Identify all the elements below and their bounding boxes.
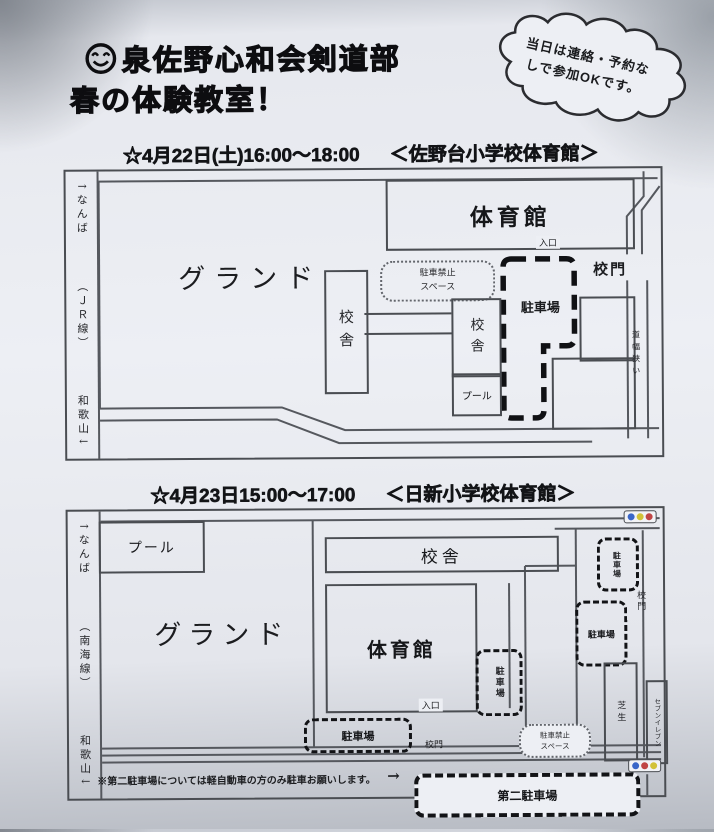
map1-rail-line: （ＪＲ線） [74,280,90,350]
map2-parking-top: 駐車場 [597,537,639,591]
map1-rail-strip: ↑なんば （ＪＲ線） 和歌山↓ [66,172,101,459]
map2-lawn-area: 芝生 [604,662,639,761]
map2-no-parking-line2: スペース [540,741,569,752]
map2-seven-eleven: セブンイレブン [646,680,669,764]
speech-cloud: 当日は連絡・予約な しで参加OKです。 [470,0,701,142]
map1-pool-building: プール [452,373,502,416]
smiley-icon [84,41,118,75]
map1-no-parking-line2: スペース [420,281,455,295]
map1-building-se [552,357,636,430]
traffic-light-icon [628,759,661,772]
map1-sanodai: ↑なんば （ＪＲ線） 和歌山↓ グランド 体育館 入口 駐車禁止 スペース 校舎… [63,166,664,461]
map2-ground-label: グランド [154,612,290,652]
flyer: 泉佐野心和会剣道部 春の体験教室！ 当日は連絡・予約な しで参加OKです。 ☆4… [0,0,714,831]
map2-parking-top-label: 駐車場 [612,551,623,578]
map1-school-building-left: 校舎 [324,270,369,394]
map2-pool-label: プール [128,537,176,557]
map2-parking-side-label: 駐車場 [493,666,506,699]
map1-heading: ☆4月22日(土)16:00～18:00 ＜佐野台小学校体育館＞ [63,138,658,169]
map2-note-text: ※第二駐車場については軽自動車の方のみ駐車お願いします。 [97,771,376,788]
map1-parking-label: 駐車場 [509,297,571,316]
traffic-red-dot [646,513,653,520]
traffic-light-icon [624,510,657,523]
map1-venue: ＜佐野台小学校体育館＞ [390,139,599,167]
map1-gym-label: 体育館 [470,197,551,231]
map2-parking-side: 駐車場 [475,649,522,716]
map1-school-building-right: 校舎 [451,298,501,377]
map2-gym-label: 体育館 [367,634,436,663]
map2-rail-strip: ↑なんば （南海線） 和歌山↓ [68,512,103,799]
cloud-text: 当日は連絡・予約な しで参加OKです。 [470,0,701,142]
traffic-red-dot [641,762,648,769]
map1-school-left-label: 校舎 [336,309,357,355]
map1-rail-wakayama: 和歌山↓ [74,394,90,448]
map1-corridor [364,312,451,335]
map2-venue: ＜日新小学校体育館＞ [385,479,575,507]
traffic-blue-dot [632,762,639,769]
map2-parking-mid-label: 駐車場 [588,627,615,640]
title-line1: 泉佐野心和会剣道部 [122,36,401,80]
map1-building-ne [579,296,635,361]
map1-no-parking-space: 駐車禁止 スペース [380,260,495,302]
map2-rail-wakayama: 和歌山↓ [76,734,92,788]
traffic-blue-dot [628,513,635,520]
flyer-title-row: 泉佐野心和会剣道部 [84,36,401,80]
map1-gate-label: 校門 [593,258,627,279]
map2-rail-namba: ↑なんば [75,522,91,576]
map1-school-right-label: 校舎 [466,317,486,359]
traffic-yellow-dot [637,513,644,520]
map1-rail-namba: ↑なんば [73,182,89,236]
traffic-yellow-dot [650,762,657,769]
map1-ground-label: グランド [178,256,322,296]
map2-rail-line: （南海線） [76,620,92,690]
map2-note-arrow-icon: → [387,767,400,785]
map2-gate-bottom-label: 校門 [425,737,443,750]
map2-gym-building: 体育館 [325,583,478,713]
map1-no-parking-line1: 駐車禁止 [420,267,456,281]
map1-narrow-road-label: 道幅狭い [630,330,641,378]
map1-entrance-label: 入口 [536,236,560,249]
map2-no-parking-space: 駐車禁止 スペース [519,724,591,758]
map1-date: ☆4月22日(土)16:00～18:00 [123,140,360,168]
map2-nisshin: ↑なんば （南海線） 和歌山↓ プール グランド 校舎 体育館 入口 駐車場 駐… [66,506,667,801]
map2-entrance-label: 入口 [419,698,443,711]
map2-lawn-label: 芝生 [614,700,627,724]
map2-no-parking-line1: 駐車禁止 [540,729,570,740]
map1-pool-label: プール [462,387,492,402]
map1-gym-building: 体育館 [386,178,635,251]
map2-school-label: 校舎 [421,542,463,567]
map2-heading: ☆4月23日15:00～17:00 ＜日新小学校体育館＞ [65,478,660,509]
map2-parking-bl-label: 駐車場 [341,727,374,743]
map2-parking-bottom-left: 駐車場 [304,718,412,754]
title-line2: 春の体験教室！ [70,76,287,119]
map2-date: ☆4月23日15:00～17:00 [150,480,355,508]
map2-pool-building: プール [99,521,205,574]
map2-gate-right-label: 校門 [634,590,647,612]
map2-seven-eleven-label: セブンイレブン [652,698,662,747]
map2-parking-mid: 駐車場 [575,600,627,666]
map2-school-building: 校舎 [325,536,559,573]
map2-second-parking-label: 第二駐車場 [497,786,557,803]
map2-second-parking: 第二駐車場 [414,772,640,817]
